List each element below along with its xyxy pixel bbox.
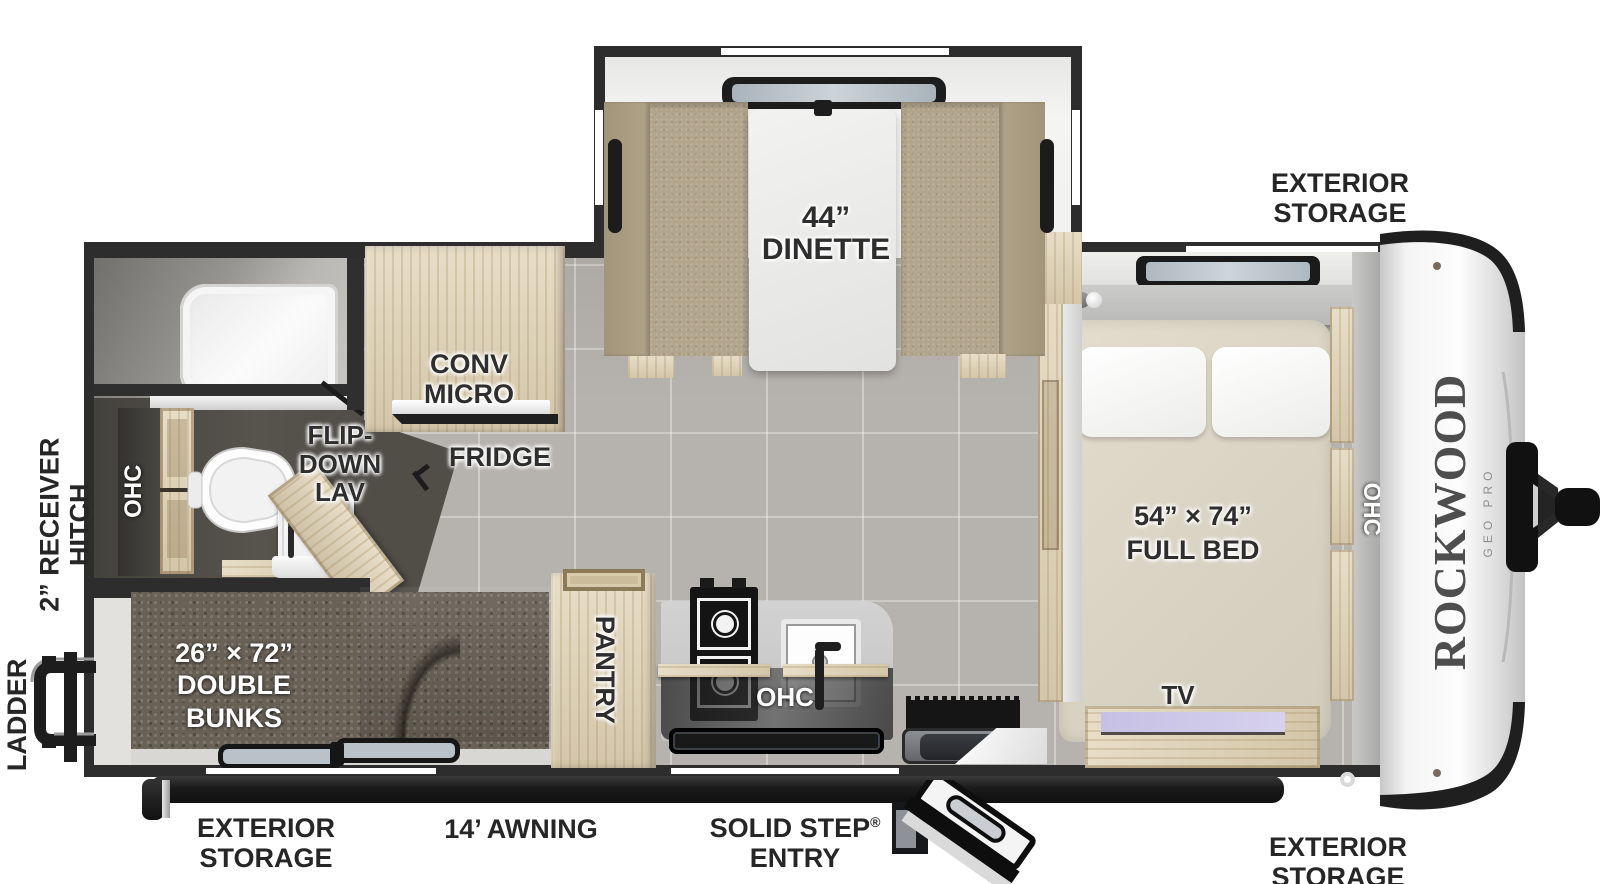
svg-text:GEO PRO: GEO PRO	[1481, 466, 1495, 557]
svg-text:ROCKWOOD: ROCKWOOD	[1424, 374, 1475, 671]
